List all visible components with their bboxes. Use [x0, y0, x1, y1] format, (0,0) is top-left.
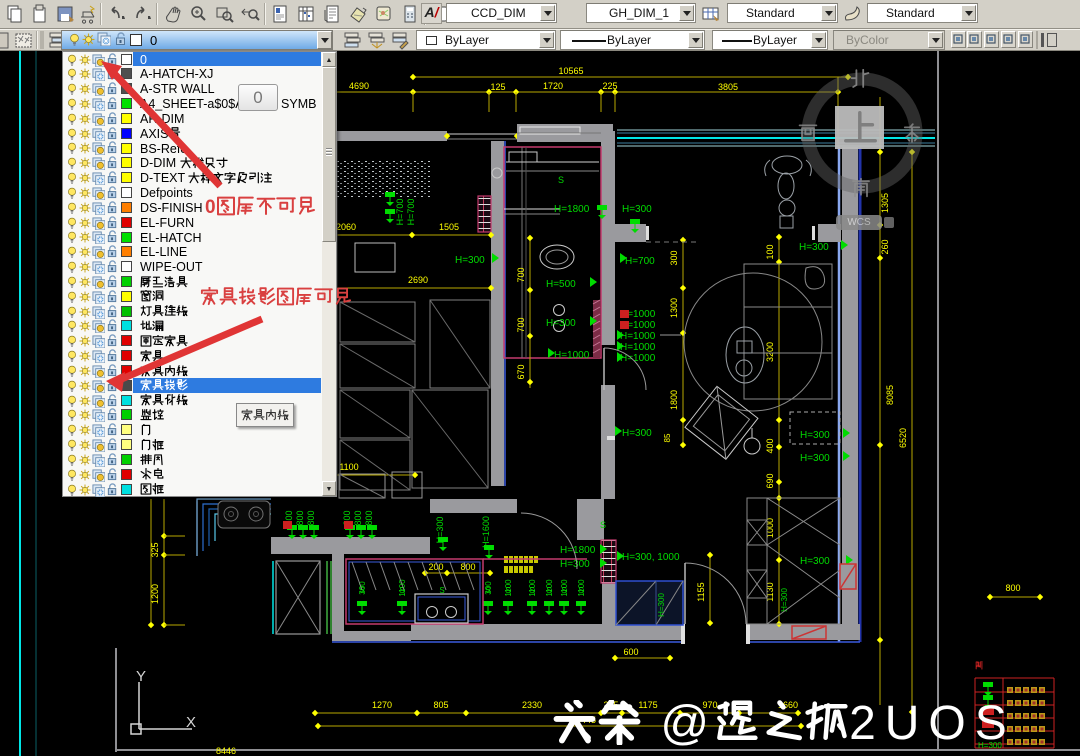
svg-text:300: 300 [669, 250, 679, 265]
svg-text:8446: 8446 [216, 746, 236, 756]
svg-text:1100: 1100 [528, 579, 537, 597]
svg-text:1100: 1100 [545, 579, 554, 597]
svg-text:800: 800 [1005, 583, 1020, 593]
svg-text:H=1800: H=1800 [560, 545, 596, 556]
svg-text:700: 700 [516, 267, 526, 282]
svg-text:1800: 1800 [669, 390, 679, 410]
svg-text:690: 690 [765, 473, 775, 488]
svg-text:H=300: H=300 [800, 453, 830, 464]
svg-text:1100: 1100 [339, 462, 358, 472]
svg-text:H=1000: H=1000 [620, 342, 656, 353]
svg-text:1505: 1505 [439, 222, 459, 232]
svg-text:1300: 1300 [669, 298, 679, 318]
svg-text:H=300: H=300 [560, 559, 590, 570]
svg-text:1200: 1200 [150, 584, 160, 604]
svg-text:10565: 10565 [558, 66, 583, 76]
svg-text:H=700: H=700 [625, 256, 655, 267]
svg-text:670: 670 [516, 364, 526, 379]
svg-text:8085: 8085 [885, 385, 895, 405]
svg-text:H=300: H=300 [622, 428, 652, 439]
svg-text:600: 600 [623, 647, 638, 657]
svg-text:H=300: H=300 [455, 255, 485, 266]
svg-text:H=700: H=700 [406, 199, 416, 226]
svg-text:85: 85 [663, 433, 672, 442]
svg-text:700: 700 [516, 317, 526, 332]
svg-text:H=300: H=300 [799, 242, 829, 253]
svg-text:800: 800 [295, 510, 305, 525]
svg-text:1100: 1100 [577, 579, 586, 597]
svg-text:225: 225 [602, 81, 617, 91]
svg-text:2690: 2690 [408, 275, 428, 285]
svg-text:1720: 1720 [543, 81, 563, 91]
svg-text:1270: 1270 [372, 700, 392, 710]
svg-text:H=300, 1000: H=300, 1000 [622, 552, 680, 563]
svg-text:H=300: H=300 [657, 593, 666, 617]
svg-text:100: 100 [765, 244, 775, 259]
svg-text:800: 800 [460, 562, 475, 572]
svg-text:H=1800: H=1800 [554, 204, 590, 215]
svg-text:800: 800 [364, 510, 374, 525]
svg-text:H=300: H=300 [800, 430, 830, 441]
svg-text:325: 325 [150, 542, 160, 557]
svg-text:800: 800 [306, 510, 316, 525]
svg-text:S: S [600, 520, 606, 530]
svg-text:H=1000: H=1000 [620, 353, 656, 364]
svg-text:X: X [186, 714, 196, 731]
svg-text:H=300: H=300 [622, 204, 652, 215]
svg-text:200: 200 [428, 562, 443, 572]
svg-text:S: S [558, 175, 564, 185]
svg-text:805: 805 [433, 700, 448, 710]
svg-text:3200: 3200 [765, 342, 775, 362]
svg-text:260: 260 [880, 239, 890, 254]
svg-text:1100: 1100 [398, 579, 407, 597]
svg-text:Y: Y [136, 668, 146, 685]
svg-text:H=300: H=300 [800, 556, 830, 567]
svg-text:H=1600: H=1600 [481, 516, 491, 548]
svg-text:6520: 6520 [898, 428, 908, 448]
svg-text:1100: 1100 [504, 579, 513, 597]
svg-text:400: 400 [765, 438, 775, 453]
svg-text:H=1000: H=1000 [620, 331, 656, 342]
svg-text:2060: 2060 [336, 222, 356, 232]
svg-text:H=300: H=300 [546, 318, 576, 329]
svg-text:1155: 1155 [696, 582, 706, 601]
svg-text:1100: 1100 [560, 579, 569, 597]
svg-text:2330: 2330 [522, 700, 542, 710]
svg-text:1305: 1305 [880, 193, 890, 213]
svg-text:H=1000: H=1000 [554, 350, 590, 361]
svg-text:H=500: H=500 [546, 279, 576, 290]
svg-text:4690: 4690 [349, 81, 369, 91]
svg-text:800: 800 [353, 510, 363, 525]
svg-text:3805: 3805 [718, 82, 738, 92]
svg-text:H=700: H=700 [395, 199, 405, 226]
svg-text:125: 125 [490, 82, 505, 92]
svg-text:300: 300 [484, 581, 493, 595]
